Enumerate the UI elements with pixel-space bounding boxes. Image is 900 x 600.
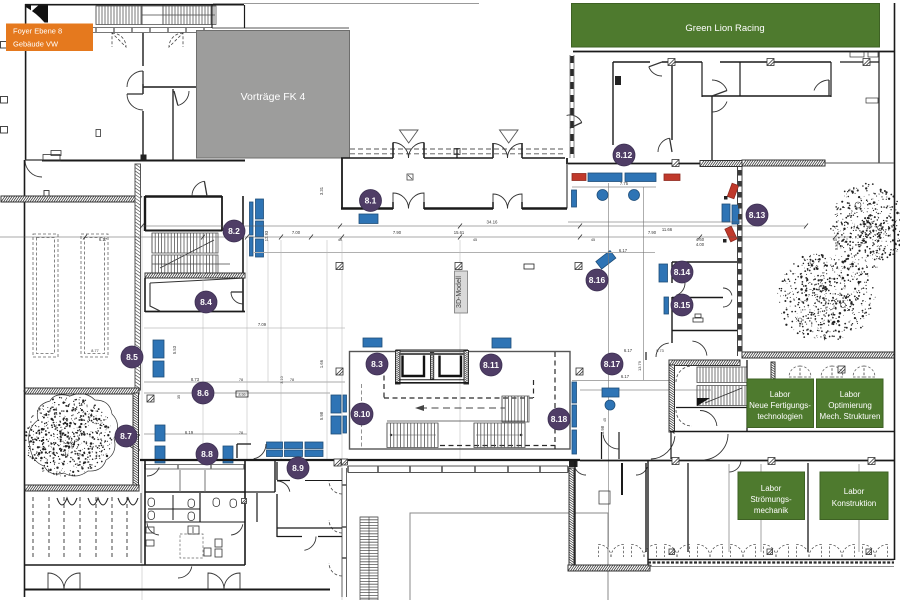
svg-text:8.13: 8.13 (749, 210, 766, 220)
svg-text:6.17: 6.17 (99, 237, 108, 242)
svg-text:7.90: 7.90 (393, 230, 402, 235)
svg-text:8.4: 8.4 (200, 297, 212, 307)
svg-text:8.15: 8.15 (674, 300, 691, 310)
svg-text:78: 78 (239, 431, 243, 435)
svg-text:8.16: 8.16 (589, 275, 606, 285)
svg-text:6.17: 6.17 (621, 374, 630, 379)
svg-text:6.19: 6.19 (185, 430, 194, 435)
svg-text:8.7: 8.7 (120, 431, 132, 441)
svg-text:34.16: 34.16 (487, 220, 499, 225)
svg-text:9.50: 9.50 (834, 241, 839, 250)
svg-text:5.98: 5.98 (319, 411, 324, 420)
svg-text:Labor: Labor (770, 390, 791, 399)
svg-text:8.2: 8.2 (228, 226, 240, 236)
svg-text:45: 45 (338, 238, 342, 242)
svg-text:15.61: 15.61 (454, 230, 465, 235)
svg-text:5.53: 5.53 (172, 345, 177, 354)
svg-text:6.17: 6.17 (624, 348, 633, 353)
svg-text:mechanik: mechanik (754, 506, 789, 515)
svg-text:1.66: 1.66 (319, 359, 324, 368)
svg-text:8.77: 8.77 (91, 349, 98, 353)
svg-text:78: 78 (239, 378, 243, 382)
svg-text:Konstruktion: Konstruktion (832, 499, 876, 508)
svg-text:8.99: 8.99 (239, 393, 246, 397)
svg-text:3D-Modell: 3D-Modell (456, 276, 463, 308)
svg-text:3.10: 3.10 (280, 376, 284, 383)
svg-text:Strömungs-: Strömungs- (750, 495, 792, 504)
svg-text:7.09: 7.09 (258, 322, 267, 327)
svg-text:Labor: Labor (761, 484, 782, 493)
svg-text:7.00: 7.00 (292, 230, 301, 235)
svg-text:78: 78 (290, 378, 294, 382)
svg-text:8.17: 8.17 (604, 359, 621, 369)
svg-text:9.73: 9.73 (656, 349, 663, 353)
svg-text:8.10: 8.10 (354, 409, 371, 419)
svg-text:7.90: 7.90 (648, 230, 657, 235)
svg-text:Vorträge FK 4: Vorträge FK 4 (241, 91, 306, 103)
svg-text:8.9: 8.9 (292, 463, 304, 473)
svg-text:Mech. Strukturen: Mech. Strukturen (820, 412, 881, 421)
svg-text:8.12: 8.12 (616, 150, 633, 160)
svg-text:11.66: 11.66 (662, 227, 673, 232)
svg-text:Labor: Labor (840, 390, 861, 399)
svg-text:8.11: 8.11 (483, 360, 499, 370)
svg-text:13.79: 13.79 (637, 360, 642, 371)
svg-text:Foyer Ebene 8: Foyer Ebene 8 (13, 27, 62, 36)
svg-text:8.6: 8.6 (197, 388, 209, 398)
svg-text:8.73: 8.73 (191, 377, 200, 382)
svg-text:Green Lion Racing: Green Lion Racing (685, 23, 764, 34)
svg-text:Optimierung: Optimierung (828, 401, 872, 410)
svg-text:8.1: 8.1 (365, 196, 377, 206)
svg-text:8.5: 8.5 (126, 352, 138, 362)
svg-text:Gebäude VW: Gebäude VW (13, 40, 59, 49)
svg-text:4.00: 4.00 (696, 242, 705, 247)
svg-text:5.98: 5.98 (600, 425, 605, 434)
svg-text:8.18: 8.18 (551, 414, 568, 424)
svg-text:8.8: 8.8 (201, 449, 213, 459)
svg-text:technologien: technologien (757, 412, 802, 421)
svg-text:45: 45 (591, 238, 595, 242)
svg-text:12.93: 12.93 (264, 230, 269, 241)
svg-text:45: 45 (603, 418, 607, 422)
svg-text:3.31: 3.31 (319, 186, 324, 195)
svg-text:7.75: 7.75 (620, 181, 629, 186)
svg-text:8.14: 8.14 (674, 267, 691, 277)
svg-text:45: 45 (473, 238, 477, 242)
svg-text:35: 35 (177, 395, 181, 399)
svg-text:8.3: 8.3 (371, 359, 383, 369)
svg-text:Neue Fertigungs-: Neue Fertigungs- (749, 401, 811, 410)
svg-text:Labor: Labor (844, 487, 865, 496)
